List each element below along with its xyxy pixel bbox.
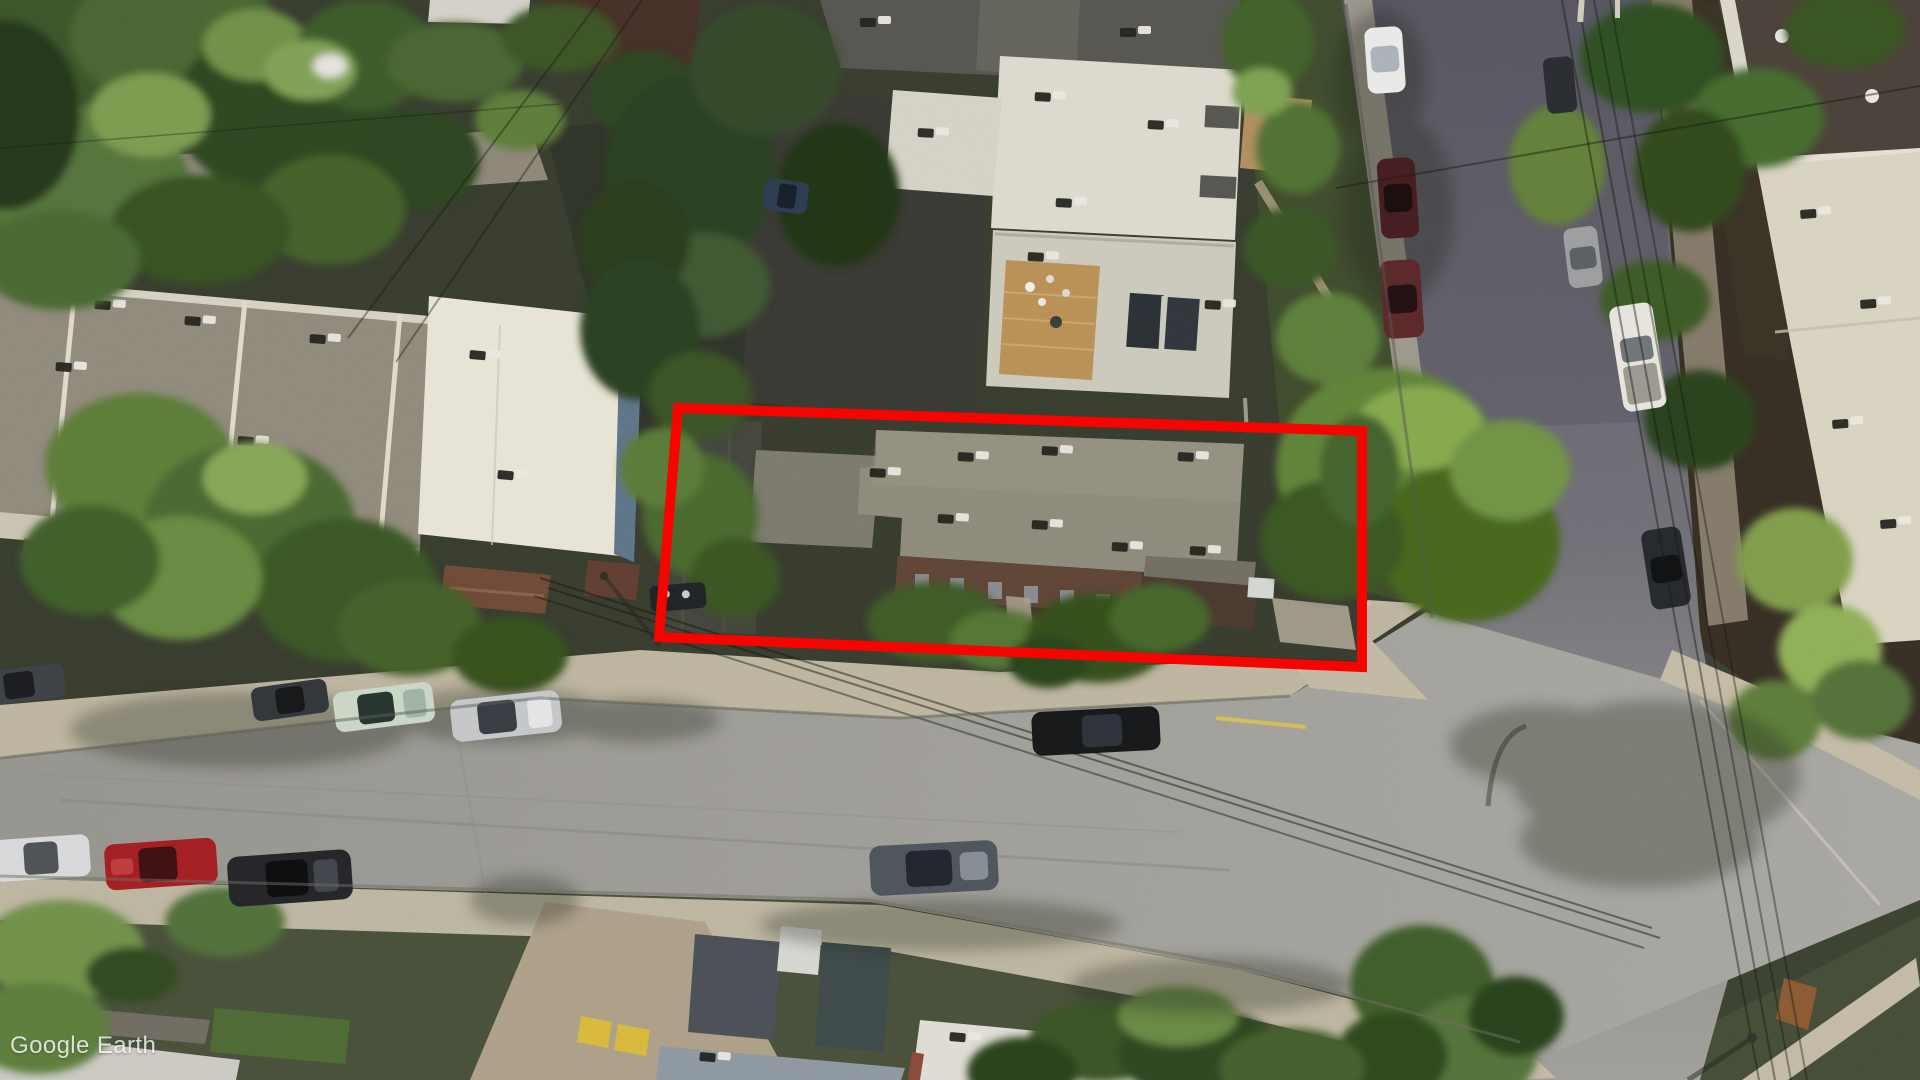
photo-grain xyxy=(0,0,1920,1080)
google-earth-viewport[interactable]: Google Earth xyxy=(0,0,1920,1080)
aerial-imagery-canvas[interactable] xyxy=(0,0,1920,1080)
